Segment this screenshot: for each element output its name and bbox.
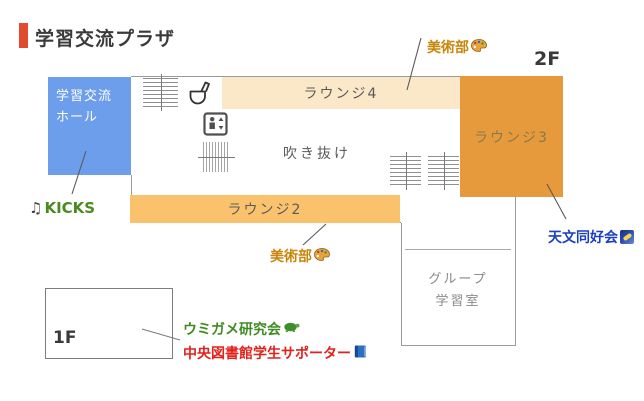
label-astronomy-club: 天文同好会 — [548, 227, 634, 247]
room-lounge4: ラウンジ4 — [222, 77, 460, 109]
stairs-rail — [444, 152, 445, 190]
stairs-rail — [198, 157, 235, 158]
floor-2f-label: 2F — [534, 48, 560, 70]
room-hall: 学習交流 ホール — [48, 77, 131, 175]
stairs-icon — [203, 142, 230, 172]
label-library-supporter: 中央図書館学生サポーター — [183, 343, 368, 363]
room-lounge3-label: ラウンジ3 — [460, 76, 563, 197]
room-lounge2-label: ラウンジ2 — [130, 195, 400, 223]
leader-line-art-bottom — [303, 224, 326, 245]
stairs-rail — [161, 74, 162, 111]
stairs-icon — [428, 156, 459, 186]
label-library-supporter-text: 中央図書館学生サポーター — [183, 343, 351, 363]
label-art-club-top: 美術部 — [427, 37, 487, 57]
elevator-icon — [203, 112, 228, 140]
stairs-icon — [143, 78, 178, 107]
room-lounge3: ラウンジ3 — [460, 76, 563, 197]
floor-1f-box — [45, 288, 173, 359]
group-room-wall-bottom — [401, 345, 516, 346]
label-art-club-bottom: 美術部 — [270, 246, 330, 266]
wall-left-step — [131, 175, 132, 196]
group-room-divider — [405, 249, 511, 250]
room-lounge2: ラウンジ2 — [130, 195, 400, 223]
palette-icon — [314, 248, 330, 265]
book-icon — [353, 344, 368, 363]
music-notes-icon: ♫ — [29, 199, 42, 217]
label-sea-turtle-club: ウミガメ研究会 — [183, 319, 300, 339]
label-astronomy-club-text: 天文同好会 — [548, 227, 618, 247]
label-art-club-bottom-text: 美術部 — [270, 246, 312, 266]
room-lounge4-label: ラウンジ4 — [222, 77, 460, 109]
stairs-icon — [390, 156, 421, 186]
label-kicks: ♫KICKS — [29, 199, 95, 217]
group-room-label-line2: 学習室 — [401, 291, 515, 313]
toilet-icon — [186, 80, 212, 112]
turtle-icon — [283, 321, 300, 337]
atrium-label: 吹き抜け — [283, 143, 351, 163]
label-kicks-text: KICKS — [44, 199, 95, 217]
room-hall-label-line1: 学習交流 — [56, 86, 131, 107]
floor-1f-label: 1F — [53, 328, 76, 348]
group-room-label-line1: グループ — [401, 269, 515, 291]
floor-map-page: 学習交流プラザ 2F 学習交流 ホール ラウンジ4 ラウンジ3 ラウンジ2 吹き… — [0, 0, 644, 401]
milky-way-icon — [620, 230, 634, 244]
room-hall-label-line2: ホール — [56, 107, 131, 128]
group-room-wall-right — [515, 197, 516, 346]
label-sea-turtle-club-text: ウミガメ研究会 — [183, 319, 281, 339]
group-room-label: グループ 学習室 — [401, 269, 515, 313]
label-art-club-top-text: 美術部 — [427, 37, 469, 57]
palette-icon — [471, 39, 487, 56]
page-title: 学習交流プラザ — [35, 24, 175, 51]
title-accent-bar — [19, 23, 28, 48]
stairs-rail — [406, 152, 407, 190]
